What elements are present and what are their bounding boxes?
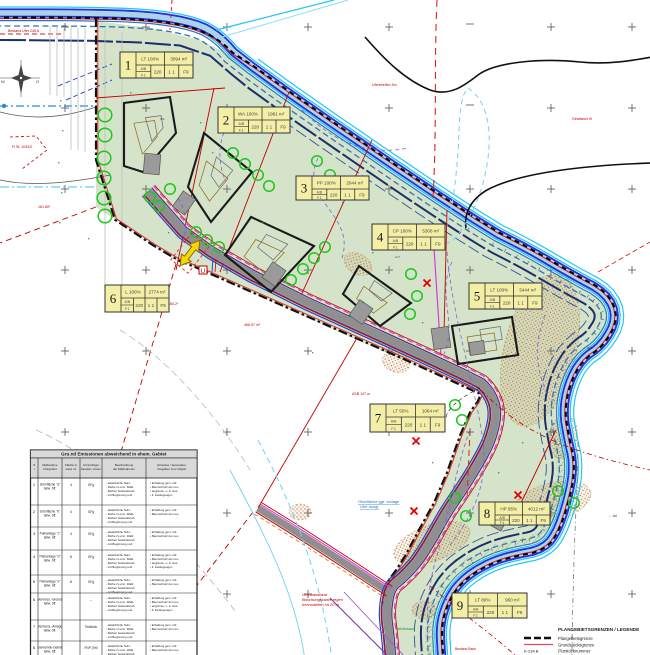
svg-text:• lt. Festlegungen: • lt. Festlegungen xyxy=(150,565,173,569)
svg-text:LT 50%: LT 50% xyxy=(393,409,408,414)
svg-text:WA 100%: WA 100% xyxy=(238,112,258,117)
svg-text:F.1: F.1 xyxy=(391,427,396,431)
svg-text:A/B: A/B xyxy=(125,300,131,304)
svg-text:220: 220 xyxy=(251,125,259,130)
svg-text:1 1: 1 1 xyxy=(420,242,427,247)
svg-text:Vorgaben zum Objekt: Vorgaben zum Objekt xyxy=(157,467,186,471)
svg-text:GFg: GFg xyxy=(88,532,94,536)
svg-text:3: 3 xyxy=(301,181,308,196)
svg-text:F9: F9 xyxy=(532,301,538,306)
svg-text:4: 4 xyxy=(70,532,72,536)
svg-text:F9: F9 xyxy=(280,125,286,130)
svg-text:GFg: GFg xyxy=(88,483,94,487)
svg-text:220: 220 xyxy=(135,303,143,308)
svg-text:F9: F9 xyxy=(183,70,189,75)
svg-text:A/B: A/B xyxy=(490,298,496,302)
svg-text:Gehölzsaum: Gehölzsaum xyxy=(396,627,415,631)
svg-text:8: 8 xyxy=(70,555,72,559)
svg-text:teilw. öff.: teilw. öff. xyxy=(44,487,56,491)
svg-text:1 1: 1 1 xyxy=(517,301,524,306)
svg-text:2: 2 xyxy=(223,113,230,128)
svg-text:Gru.nd Emissionen abweichend i: Gru.nd Emissionen abweichend in ehem. Ge… xyxy=(61,452,167,457)
svg-text:Plangebietsgrenze: Plangebietsgrenze xyxy=(558,636,593,641)
svg-text:1: 1 xyxy=(125,58,132,73)
svg-text:F.1: F.1 xyxy=(125,307,130,311)
svg-text:F.1: F.1 xyxy=(473,614,478,618)
svg-text:Flurgebiet: Flurgebiet xyxy=(43,467,57,471)
svg-text:• Baumschutz der neu: • Baumschutz der neu xyxy=(150,627,179,631)
svg-text:- mit Begrünung und: - mit Begrünung und xyxy=(106,542,133,546)
svg-text:- mit Begrünung und: - mit Begrünung und xyxy=(106,520,133,524)
svg-text:F9: F9 xyxy=(359,193,365,198)
svg-text:der Maßnahmen: der Maßnahmen xyxy=(113,467,135,471)
svg-text:A/B: A/B xyxy=(317,190,323,194)
svg-text:F9: F9 xyxy=(160,303,166,308)
svg-text:220: 220 xyxy=(512,518,520,523)
svg-text:bauplan. Ausw.: bauplan. Ausw. xyxy=(81,467,101,471)
svg-text:GFg: GFg xyxy=(88,580,94,584)
svg-text:2044 m²: 2044 m² xyxy=(346,181,363,186)
svg-text:• Baumschutz der neu: • Baumschutz der neu xyxy=(150,648,179,652)
svg-text:F9: F9 xyxy=(435,242,441,247)
svg-text:460,2*: 460,2* xyxy=(168,302,179,306)
svg-text:ASB 107 m: ASB 107 m xyxy=(352,392,370,396)
svg-text:etwa m²: etwa m² xyxy=(66,467,77,471)
svg-text:U: U xyxy=(201,268,206,275)
svg-text:220: 220 xyxy=(154,70,162,75)
svg-text:Grundstücksgrenze: Grundstücksgrenze xyxy=(558,643,595,648)
svg-text:F.1: F.1 xyxy=(239,128,244,132)
svg-text:7: 7 xyxy=(375,411,382,426)
svg-text:1981 m²: 1981 m² xyxy=(268,112,285,117)
svg-text:8: 8 xyxy=(70,580,72,584)
svg-text:- mit Begrünung und: - mit Begrünung und xyxy=(106,635,133,639)
svg-text:• Baumschutz der neu: • Baumschutz der neu xyxy=(150,534,179,538)
svg-text:PLANGEBIETSGRENZEN / LEGENDE: PLANGEBIETSGRENZEN / LEGENDE xyxy=(558,627,639,632)
svg-text:220: 220 xyxy=(406,242,414,247)
svg-text:• Baumschutz der neu: • Baumschutz der neu xyxy=(150,582,179,586)
svg-text:9: 9 xyxy=(457,598,464,613)
svg-text:• lt. Festlegungen: • lt. Festlegungen xyxy=(150,608,173,612)
svg-text:F.1: F.1 xyxy=(141,73,146,77)
svg-text:teilw. öff.: teilw. öff. xyxy=(44,629,56,633)
svg-text:F.1: F.1 xyxy=(500,521,505,525)
svg-text:1 1: 1 1 xyxy=(266,125,273,130)
svg-text:1 1: 1 1 xyxy=(148,303,155,308)
svg-text:CP 100%: CP 100% xyxy=(393,229,412,234)
svg-text:8: 8 xyxy=(484,506,491,521)
svg-text:3094 m²: 3094 m² xyxy=(170,57,187,62)
svg-text:WA: WA xyxy=(160,117,165,121)
svg-text:W: W xyxy=(1,79,5,84)
svg-text:1 1: 1 1 xyxy=(526,518,533,523)
svg-text:A/B: A/B xyxy=(239,122,245,126)
svg-text:A/B: A/B xyxy=(391,419,397,423)
svg-text:4012 m²: 4012 m² xyxy=(528,507,545,512)
svg-text:4: 4 xyxy=(377,230,384,245)
svg-text:teilw. öff.: teilw. öff. xyxy=(44,514,56,518)
svg-text:F.1: F.1 xyxy=(393,245,398,249)
svg-text:LT 100%: LT 100% xyxy=(490,288,508,293)
svg-text:4: 4 xyxy=(70,510,72,514)
svg-text:A/B: A/B xyxy=(499,516,505,520)
svg-text:220: 220 xyxy=(405,423,413,428)
svg-text:- mit Begrünung und: - mit Begrünung und xyxy=(106,565,133,569)
svg-text:herzustellen ca 20 m: herzustellen ca 20 m xyxy=(302,602,340,607)
svg-text:1 1: 1 1 xyxy=(420,423,427,428)
svg-text:teilw. öff.: teilw. öff. xyxy=(44,536,56,540)
svg-text:- mit Begrünung und: - mit Begrünung und xyxy=(106,590,133,594)
svg-text:5444 m²: 5444 m² xyxy=(519,288,536,293)
svg-text:O: O xyxy=(36,79,39,84)
svg-text:4: 4 xyxy=(70,483,72,487)
svg-text:PP 100%: PP 100% xyxy=(317,181,336,186)
svg-text:L 100%: L 100% xyxy=(125,290,140,295)
svg-text:A/B: A/B xyxy=(393,239,399,243)
svg-text:F9: F9 xyxy=(435,423,441,428)
svg-text:→ dd: → dd xyxy=(582,345,592,350)
svg-text:1064 m²: 1064 m² xyxy=(422,409,439,414)
svg-text:Bestand Bach: Bestand Bach xyxy=(455,647,476,651)
svg-text:–: – xyxy=(90,598,92,602)
svg-text:220: 220 xyxy=(330,193,338,198)
svg-text:F9: F9 xyxy=(517,610,523,615)
svg-text:Teilstück: Teilstück xyxy=(85,625,98,629)
svg-text:FNP (Teil: FNP (Teil xyxy=(84,646,97,650)
svg-text:teilw. öff.: teilw. öff. xyxy=(44,584,56,588)
svg-text:F9: F9 xyxy=(540,518,546,523)
svg-text:1 1: 1 1 xyxy=(344,193,351,198)
svg-text:→ dd: → dd xyxy=(608,514,617,518)
svg-text:161,80*: 161,80* xyxy=(38,205,51,209)
svg-text:Gewässer III: Gewässer III xyxy=(572,117,592,121)
svg-text:A/B: A/B xyxy=(473,608,479,612)
svg-text:5308 m²: 5308 m² xyxy=(422,229,439,234)
svg-text:5: 5 xyxy=(474,289,481,304)
svg-text:K-234 B: K-234 B xyxy=(524,649,539,654)
svg-text:466,97 m²: 466,97 m² xyxy=(244,323,261,327)
svg-text:Flurstücknummer: Flurstücknummer xyxy=(558,649,591,654)
svg-text:1 1: 1 1 xyxy=(168,70,175,75)
svg-text:F.1: F.1 xyxy=(317,196,322,200)
svg-text:960 m²: 960 m² xyxy=(505,598,520,603)
svg-text:Uferstreifen 5m: Uferstreifen 5m xyxy=(372,83,397,87)
svg-text:• Baumschutz der neu: • Baumschutz der neu xyxy=(150,512,179,516)
svg-text:teilw. öff.: teilw. öff. xyxy=(44,650,56,654)
svg-text:2774 m²: 2774 m² xyxy=(149,290,166,295)
svg-text:teilw. öff.: teilw. öff. xyxy=(44,602,56,606)
svg-text:F.1: F.1 xyxy=(490,304,495,308)
svg-text:HP 95%: HP 95% xyxy=(500,507,517,512)
svg-text:Bestand Ufer 245,6: Bestand Ufer 245,6 xyxy=(8,29,39,33)
svg-text:a=7: a=7 xyxy=(395,255,400,259)
svg-text:220: 220 xyxy=(487,610,495,615)
svg-text:1 1: 1 1 xyxy=(502,610,509,615)
svg-text:GFg: GFg xyxy=(88,510,94,514)
svg-text:6: 6 xyxy=(110,291,117,306)
svg-text:- mit Begrünung und: - mit Begrünung und xyxy=(106,493,133,497)
svg-text:220: 220 xyxy=(503,301,511,306)
svg-text:Fl.St. 1043/2: Fl.St. 1043/2 xyxy=(12,145,32,149)
svg-text:• lt. Festlegungen: • lt. Festlegungen xyxy=(150,493,173,497)
svg-text:Ufer ausgl.: Ufer ausgl. xyxy=(360,504,379,509)
svg-text:LT 100%: LT 100% xyxy=(141,57,159,62)
svg-text:teilw. öff.: teilw. öff. xyxy=(44,559,56,563)
svg-text:LT 80%: LT 80% xyxy=(475,598,490,603)
svg-text:A/B: A/B xyxy=(141,67,147,71)
svg-text:- mit Begrünung und: - mit Begrünung und xyxy=(106,608,133,612)
svg-text:GFg: GFg xyxy=(88,555,94,559)
